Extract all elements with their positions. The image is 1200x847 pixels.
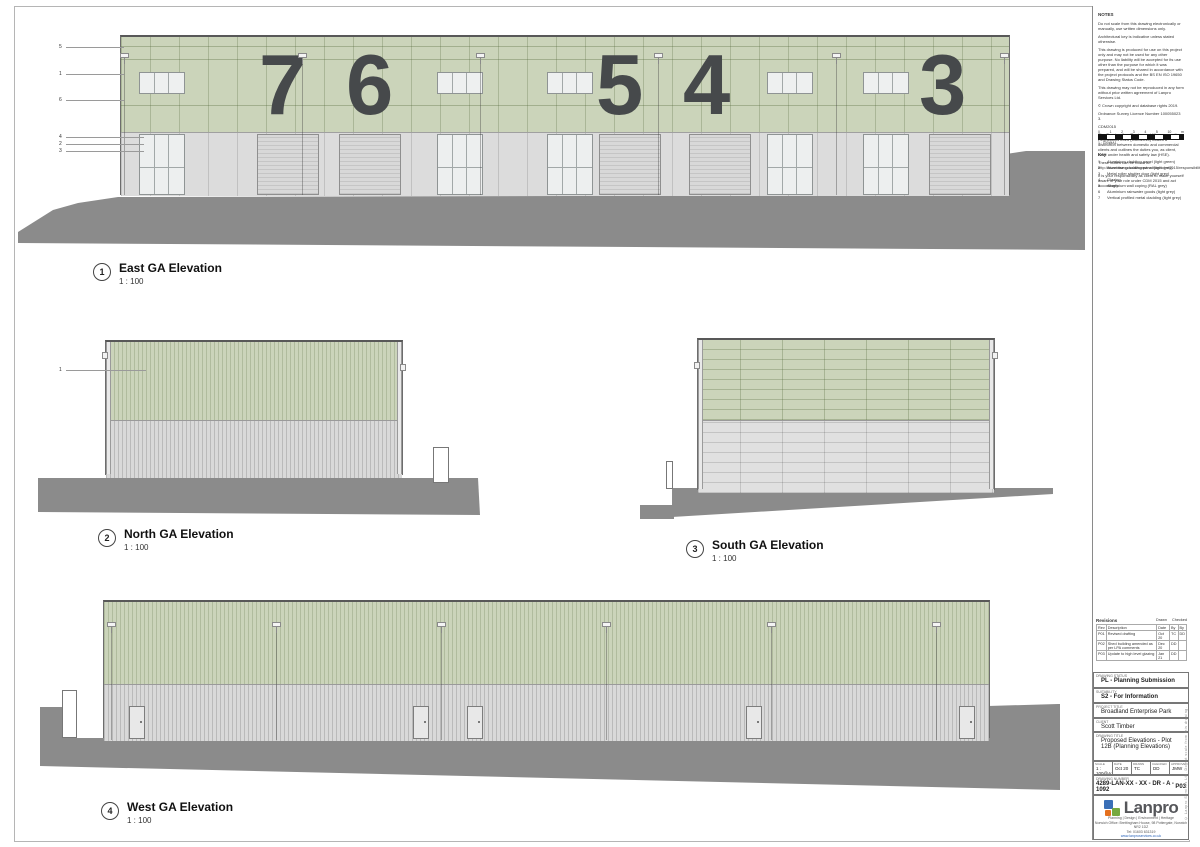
key-item: 7Vertical profiled metal cladding (light… [1098, 195, 1186, 200]
revision-row: P01 Revised drafting Oct 20 TC DD [1097, 631, 1187, 641]
keynote-ref: 2 [59, 141, 62, 147]
panel-joint-line [121, 59, 1009, 60]
field-scale: SCALE 1 : 100@A1 [1094, 762, 1113, 774]
brand-website: www.lanproservices.co.uk [1094, 834, 1188, 838]
rainwater-pipe [480, 61, 481, 195]
keynote-ref: 6 [59, 97, 62, 103]
step-wall [666, 461, 673, 489]
wall-light [602, 622, 611, 627]
south-elevation [600, 320, 1080, 540]
high-level-window [139, 72, 185, 94]
grey-cladding-band [106, 420, 402, 478]
building-outline [103, 600, 990, 738]
east-caption: 1 East GA Elevation 1 : 100 [93, 261, 222, 286]
revision-row: P03 Update to high level glazing Jan 21 … [1097, 651, 1187, 661]
rainwater-pipe [441, 630, 442, 740]
elevation-ref-circle: 1 [93, 263, 111, 281]
drawing-number-value: 4289-LAN-XX - XX - DR - A - 1092 [1096, 781, 1175, 793]
high-level-window [767, 72, 813, 94]
keynote-ref: 4 [59, 134, 62, 140]
revisions-table: Revisions Drawn Checked Rev Description … [1096, 618, 1187, 661]
wall-light [767, 622, 776, 627]
keynote-ref: 1 [59, 71, 62, 77]
wall-fixture [992, 352, 998, 359]
grey-cladding-band [104, 684, 989, 741]
south-caption: 3 South GA Elevation 1 : 100 [686, 538, 824, 563]
corner-trim [397, 342, 402, 474]
green-cladding-band [698, 340, 994, 420]
rainwater-pipe [302, 61, 303, 195]
panel-joint-line [121, 46, 1009, 47]
corner-trim [106, 342, 111, 474]
key-section: Key 1Aluminium cladding panel (light gre… [1098, 152, 1186, 201]
unit-number: 5 [596, 43, 641, 128]
building-outline [697, 338, 995, 490]
scale-tick: 5 [1156, 130, 1158, 134]
elevation-title: South GA Elevation [712, 538, 824, 552]
green-cladding-band [104, 602, 989, 684]
high-level-window [437, 72, 483, 94]
wall-light [107, 622, 116, 627]
scale-tick: 1 [1110, 130, 1112, 134]
note-paragraph: © Crown copyright and database rights 20… [1098, 103, 1184, 108]
personnel-door [746, 706, 762, 739]
wall-light [120, 53, 129, 58]
project-title-box: PROJECT TITLE Broadland Enterprise Park [1093, 703, 1189, 718]
wall-fixture [694, 362, 700, 369]
copyright-side-note: © Lanpro Services Ltd. Do not scale from… [1184, 560, 1188, 820]
elevation-ref-circle: 2 [98, 529, 116, 547]
elevation-scale: 1 : 100 [127, 816, 233, 825]
revision-row: P02 Shed building amended as per LPA com… [1097, 641, 1187, 651]
note-paragraph: This drawing is produced for use on this… [1098, 47, 1184, 82]
keynote-ref: 3 [59, 148, 62, 154]
wall-fixture [400, 364, 406, 371]
east-elevation: 7 6 5 4 3 [0, 0, 1090, 300]
field-date: DATE Oct 20 [1113, 762, 1132, 774]
personnel-door [413, 706, 429, 739]
ground [38, 474, 481, 518]
entrance-glazing [139, 134, 185, 195]
key-item: 3Metal roller shutter door (light grey) [1098, 171, 1186, 176]
logo-box: Lanpro Planning | Design | Environment |… [1093, 795, 1189, 840]
unit-number: 3 [919, 43, 964, 128]
elevation-title: East GA Elevation [119, 261, 222, 275]
personnel-door [467, 706, 483, 739]
elevation-title: West GA Elevation [127, 800, 233, 814]
key-item: 2Aluminium cladding panel (light grey) [1098, 165, 1186, 170]
roller-shutter-door [339, 134, 401, 195]
building-outline: 7 6 5 4 3 [120, 35, 1010, 195]
field-checked: CHECKED DD [1151, 762, 1170, 774]
wall-light [1000, 53, 1009, 58]
scale-unit: m [1181, 130, 1184, 134]
scale-tick: 10 [1167, 130, 1171, 134]
rainwater-pipe [658, 61, 659, 195]
personnel-door [129, 706, 145, 739]
elevation-scale: 1 : 100 [712, 554, 824, 563]
entrance-glazing [767, 134, 813, 195]
entrance-glazing [547, 134, 593, 195]
wall-fixture [102, 352, 108, 359]
keynote-ref: 5 [59, 44, 62, 50]
notes-heading: NOTES [1098, 12, 1184, 18]
keynote-leader [66, 47, 124, 48]
rainwater-pipe [606, 630, 607, 740]
elevation-ref-circle: 4 [101, 802, 119, 820]
wall-light [272, 622, 281, 627]
roller-shutter-door [929, 134, 991, 195]
entrance-glazing [437, 134, 483, 195]
step-wall [62, 690, 77, 738]
scale-date-fields: SCALE 1 : 100@A1 DATE Oct 20 DRAWN TC CH… [1093, 761, 1189, 775]
elevation-scale: 1 : 100 [119, 277, 222, 286]
north-caption: 2 North GA Elevation 1 : 100 [98, 527, 234, 552]
unit-number: 4 [683, 43, 728, 128]
scale-tick: 4 [1144, 130, 1146, 134]
suitability-box: SUITABILITY S2 - For Information [1093, 688, 1189, 703]
drawing-status-value: PL - Planning Submission [1094, 678, 1188, 684]
drawing-sheet: 7 6 5 4 3 [0, 0, 1200, 847]
lanpro-logo-icon [1104, 800, 1120, 816]
drawing-title-box: DRAWING TITLE Proposed Elevations - Plot… [1093, 732, 1189, 761]
scale-bar-caption: 1 : 100@A1 [1098, 141, 1184, 145]
panel-joint-line [121, 105, 1009, 106]
client-value: Scott Timber [1094, 724, 1188, 730]
entrance-glazing [863, 134, 909, 195]
high-level-window [863, 72, 909, 94]
roller-shutter-door [599, 134, 661, 195]
step-wall [433, 447, 449, 483]
scale-tick: 2 [1121, 130, 1123, 134]
elevation-scale: 1 : 100 [124, 543, 234, 552]
wall-light [932, 622, 941, 627]
west-elevation [0, 570, 1090, 810]
west-caption: 4 West GA Elevation 1 : 100 [101, 800, 233, 825]
rainwater-pipe [111, 630, 112, 740]
rainwater-pipe [1004, 61, 1005, 195]
keynote-leader [66, 137, 144, 138]
rainwater-pipe [836, 61, 837, 195]
suitability-value: S2 - For Information [1094, 694, 1188, 700]
drawing-status-box: DRAWING STATUS PL - Planning Submission [1093, 672, 1189, 688]
keynote-leader [66, 151, 144, 152]
wall-light [298, 53, 307, 58]
north-elevation: 1 [0, 320, 520, 530]
drawn-label: Drawn [1156, 618, 1167, 622]
building-outline [105, 340, 403, 475]
scale-bar: 0 1 2 3 4 5 10 m 1 : 100@A1 [1098, 130, 1184, 145]
keynote-ref: 1 [59, 367, 62, 373]
key-item: 1Aluminium cladding panel (light green) [1098, 159, 1186, 164]
brand-tagline: Planning | Design | Environment | Herita… [1094, 816, 1188, 821]
wall-light [437, 622, 446, 627]
project-title-value: Broadland Enterprise Park [1094, 709, 1188, 715]
keynote-leader [66, 370, 146, 371]
rainwater-pipe [276, 630, 277, 740]
keynote-leader [66, 74, 124, 75]
client-box: CLIENT Scott Timber [1093, 718, 1189, 732]
elevation-title: North GA Elevation [124, 527, 234, 541]
note-paragraph: CDM2015 [1098, 124, 1184, 129]
ground-step [640, 505, 674, 519]
drawing-title-value: Proposed Elevations - Plot 12B (Planning… [1094, 738, 1173, 750]
unit-number: 6 [346, 43, 391, 128]
drawing-number-box: DRAWING NUMBER 4289-LAN-XX - XX - DR - A… [1093, 775, 1189, 795]
key-item: 6Aluminium rainwater goods (light grey) [1098, 189, 1186, 194]
high-level-window [547, 72, 593, 94]
brand-address: Norwich Office: Brettingham House, 98 Po… [1094, 821, 1188, 830]
note-paragraph: This drawing may not be reproduced in an… [1098, 85, 1184, 100]
revisions-heading: Revisions [1096, 618, 1117, 623]
wall-light [654, 53, 663, 58]
key-item: 4Glazing [1098, 177, 1186, 182]
key-heading: Key [1098, 152, 1186, 157]
title-block: NOTES Do not scale from this drawing ele… [1092, 6, 1190, 840]
scale-tick: 3 [1133, 130, 1135, 134]
note-paragraph: Do not scale from this drawing electroni… [1098, 21, 1184, 31]
wall-light [476, 53, 485, 58]
note-paragraph: Architectural key is indicative unless s… [1098, 34, 1184, 44]
rainwater-pipe [771, 630, 772, 740]
note-paragraph: Ordnance Survey Licence Number 100055023… [1098, 111, 1184, 121]
lanpro-wordmark: Lanpro [1124, 799, 1179, 816]
elevation-ref-circle: 3 [686, 540, 704, 558]
rainwater-pipe [124, 61, 125, 195]
field-drawn: DRAWN TC [1132, 762, 1151, 774]
roller-shutter-door [257, 134, 319, 195]
green-cladding-band [106, 342, 402, 420]
roller-shutter-door [689, 134, 751, 195]
grey-cladding-band [698, 420, 994, 493]
scale-tick: 0 [1098, 130, 1100, 134]
corner-trim [989, 340, 994, 489]
personnel-door [959, 706, 975, 739]
keynote-leader [66, 144, 144, 145]
scale-bar-graphic [1098, 134, 1184, 140]
wall-light [832, 53, 841, 58]
keynote-leader [66, 100, 124, 101]
rainwater-pipe [936, 630, 937, 740]
key-item: 5Aluminium wall coping (RAL grey) [1098, 183, 1186, 188]
